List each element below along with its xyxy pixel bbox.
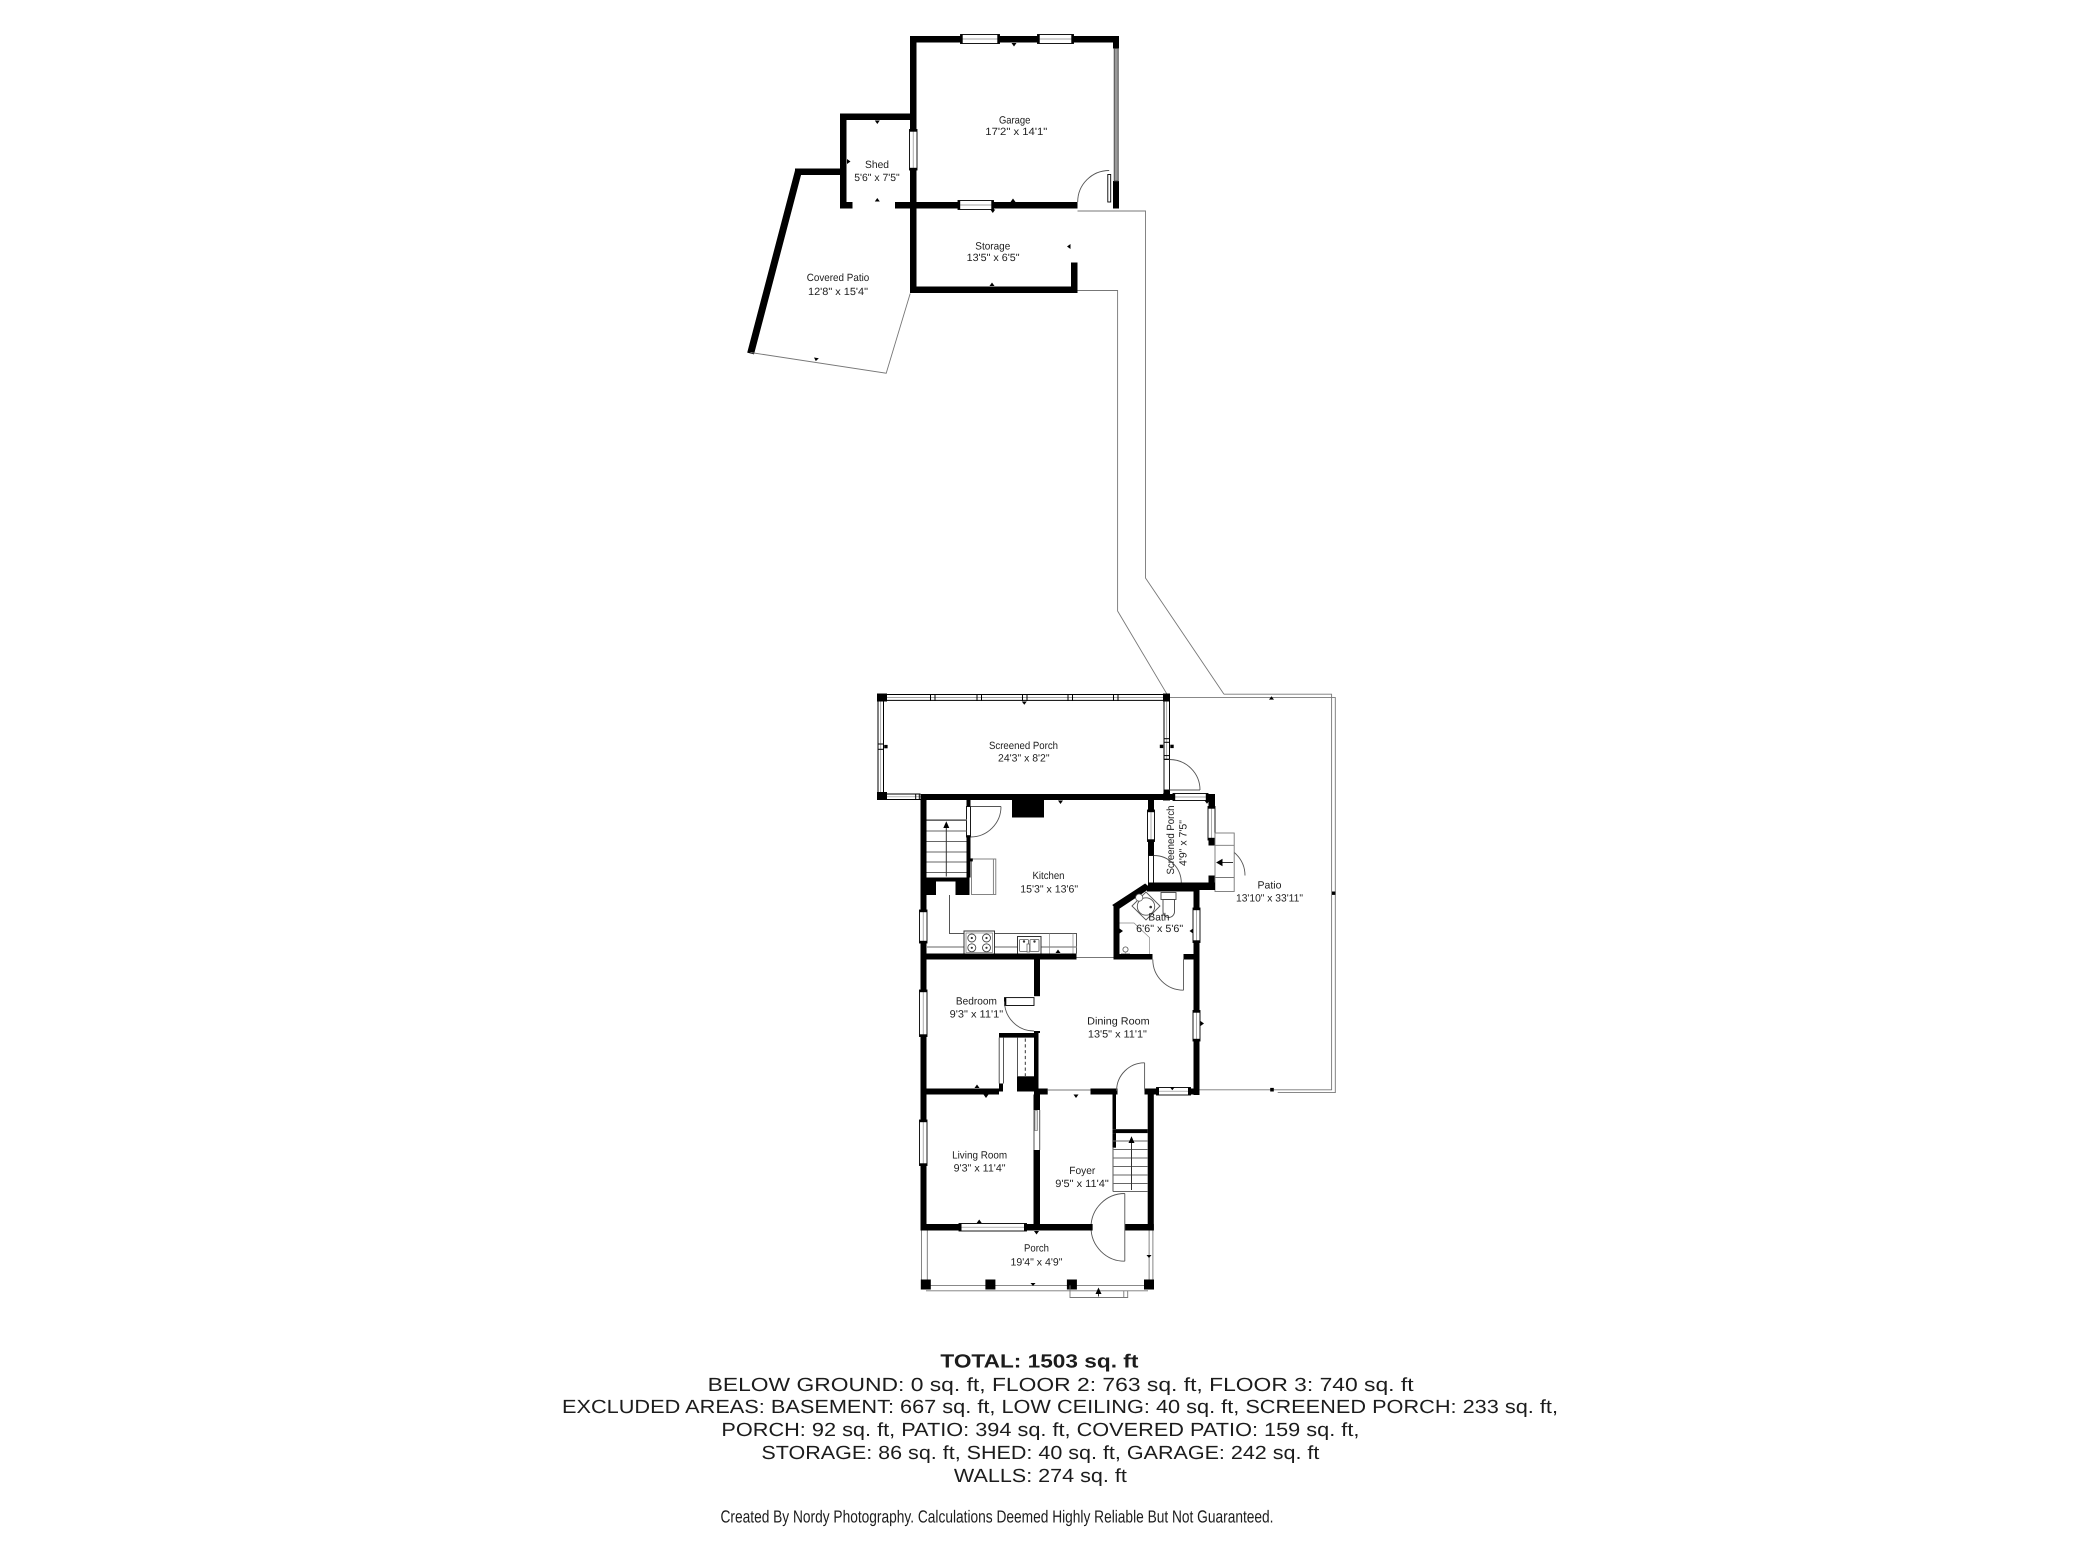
svg-text:Kitchen: Kitchen xyxy=(1033,870,1065,882)
svg-text:13'5" x 6'5": 13'5" x 6'5" xyxy=(967,252,1020,264)
svg-text:9'3" x 11'1": 9'3" x 11'1" xyxy=(950,1008,1004,1020)
svg-text:Screened Porch: Screened Porch xyxy=(1165,805,1177,874)
svg-text:Bedroom: Bedroom xyxy=(956,996,997,1008)
svg-text:PORCH: 92 sq. ft, PATIO: 394 s: PORCH: 92 sq. ft, PATIO: 394 sq. ft, COV… xyxy=(721,1420,1359,1441)
svg-text:13'5" x 11'1": 13'5" x 11'1" xyxy=(1088,1029,1147,1041)
svg-text:STORAGE: 86 sq. ft, SHED: 40 s: STORAGE: 86 sq. ft, SHED: 40 sq. ft, GAR… xyxy=(761,1443,1320,1464)
svg-text:Covered Patio: Covered Patio xyxy=(807,272,870,284)
svg-text:Patio: Patio xyxy=(1258,880,1282,892)
svg-text:Storage: Storage xyxy=(975,241,1010,253)
svg-text:WALLS: 274 sq. ft: WALLS: 274 sq. ft xyxy=(954,1466,1128,1487)
svg-text:9'5" x 11'4": 9'5" x 11'4" xyxy=(1055,1178,1109,1190)
svg-text:17'2" x 14'1": 17'2" x 14'1" xyxy=(985,126,1047,138)
svg-text:Shed: Shed xyxy=(865,159,889,171)
svg-text:24'3" x 8'2": 24'3" x 8'2" xyxy=(998,753,1050,765)
svg-text:Created By Nordy Photography.: Created By Nordy Photography. Calculatio… xyxy=(721,1507,1274,1527)
svg-text:9'3" x 11'4": 9'3" x 11'4" xyxy=(954,1163,1006,1175)
svg-text:TOTAL: 1503 sq. ft: TOTAL: 1503 sq. ft xyxy=(940,1351,1139,1372)
svg-text:5'6" x 7'5": 5'6" x 7'5" xyxy=(854,172,900,184)
svg-text:6'6" x 5'6": 6'6" x 5'6" xyxy=(1136,923,1183,935)
svg-text:Dining Room: Dining Room xyxy=(1087,1016,1150,1028)
svg-text:13'10" x 33'11": 13'10" x 33'11" xyxy=(1236,893,1303,905)
svg-text:Bath: Bath xyxy=(1148,912,1169,924)
svg-text:Garage: Garage xyxy=(999,115,1031,127)
svg-text:15'3" x 13'6": 15'3" x 13'6" xyxy=(1020,883,1078,895)
svg-text:Screened Porch: Screened Porch xyxy=(989,740,1058,752)
svg-text:Living Room: Living Room xyxy=(952,1150,1007,1162)
svg-text:Porch: Porch xyxy=(1024,1243,1049,1255)
svg-text:Foyer: Foyer xyxy=(1069,1165,1095,1177)
svg-text:EXCLUDED AREAS: BASEMENT: 667: EXCLUDED AREAS: BASEMENT: 667 sq. ft, LO… xyxy=(562,1397,1558,1418)
svg-text:BELOW GROUND: 0 sq. ft, FLOOR: BELOW GROUND: 0 sq. ft, FLOOR 2: 763 sq.… xyxy=(708,1375,1415,1396)
svg-text:19'4" x 4'9": 19'4" x 4'9" xyxy=(1011,1257,1063,1269)
svg-text:12'8" x 15'4": 12'8" x 15'4" xyxy=(808,286,868,298)
svg-text:4'9" x 7'5": 4'9" x 7'5" xyxy=(1177,820,1189,866)
